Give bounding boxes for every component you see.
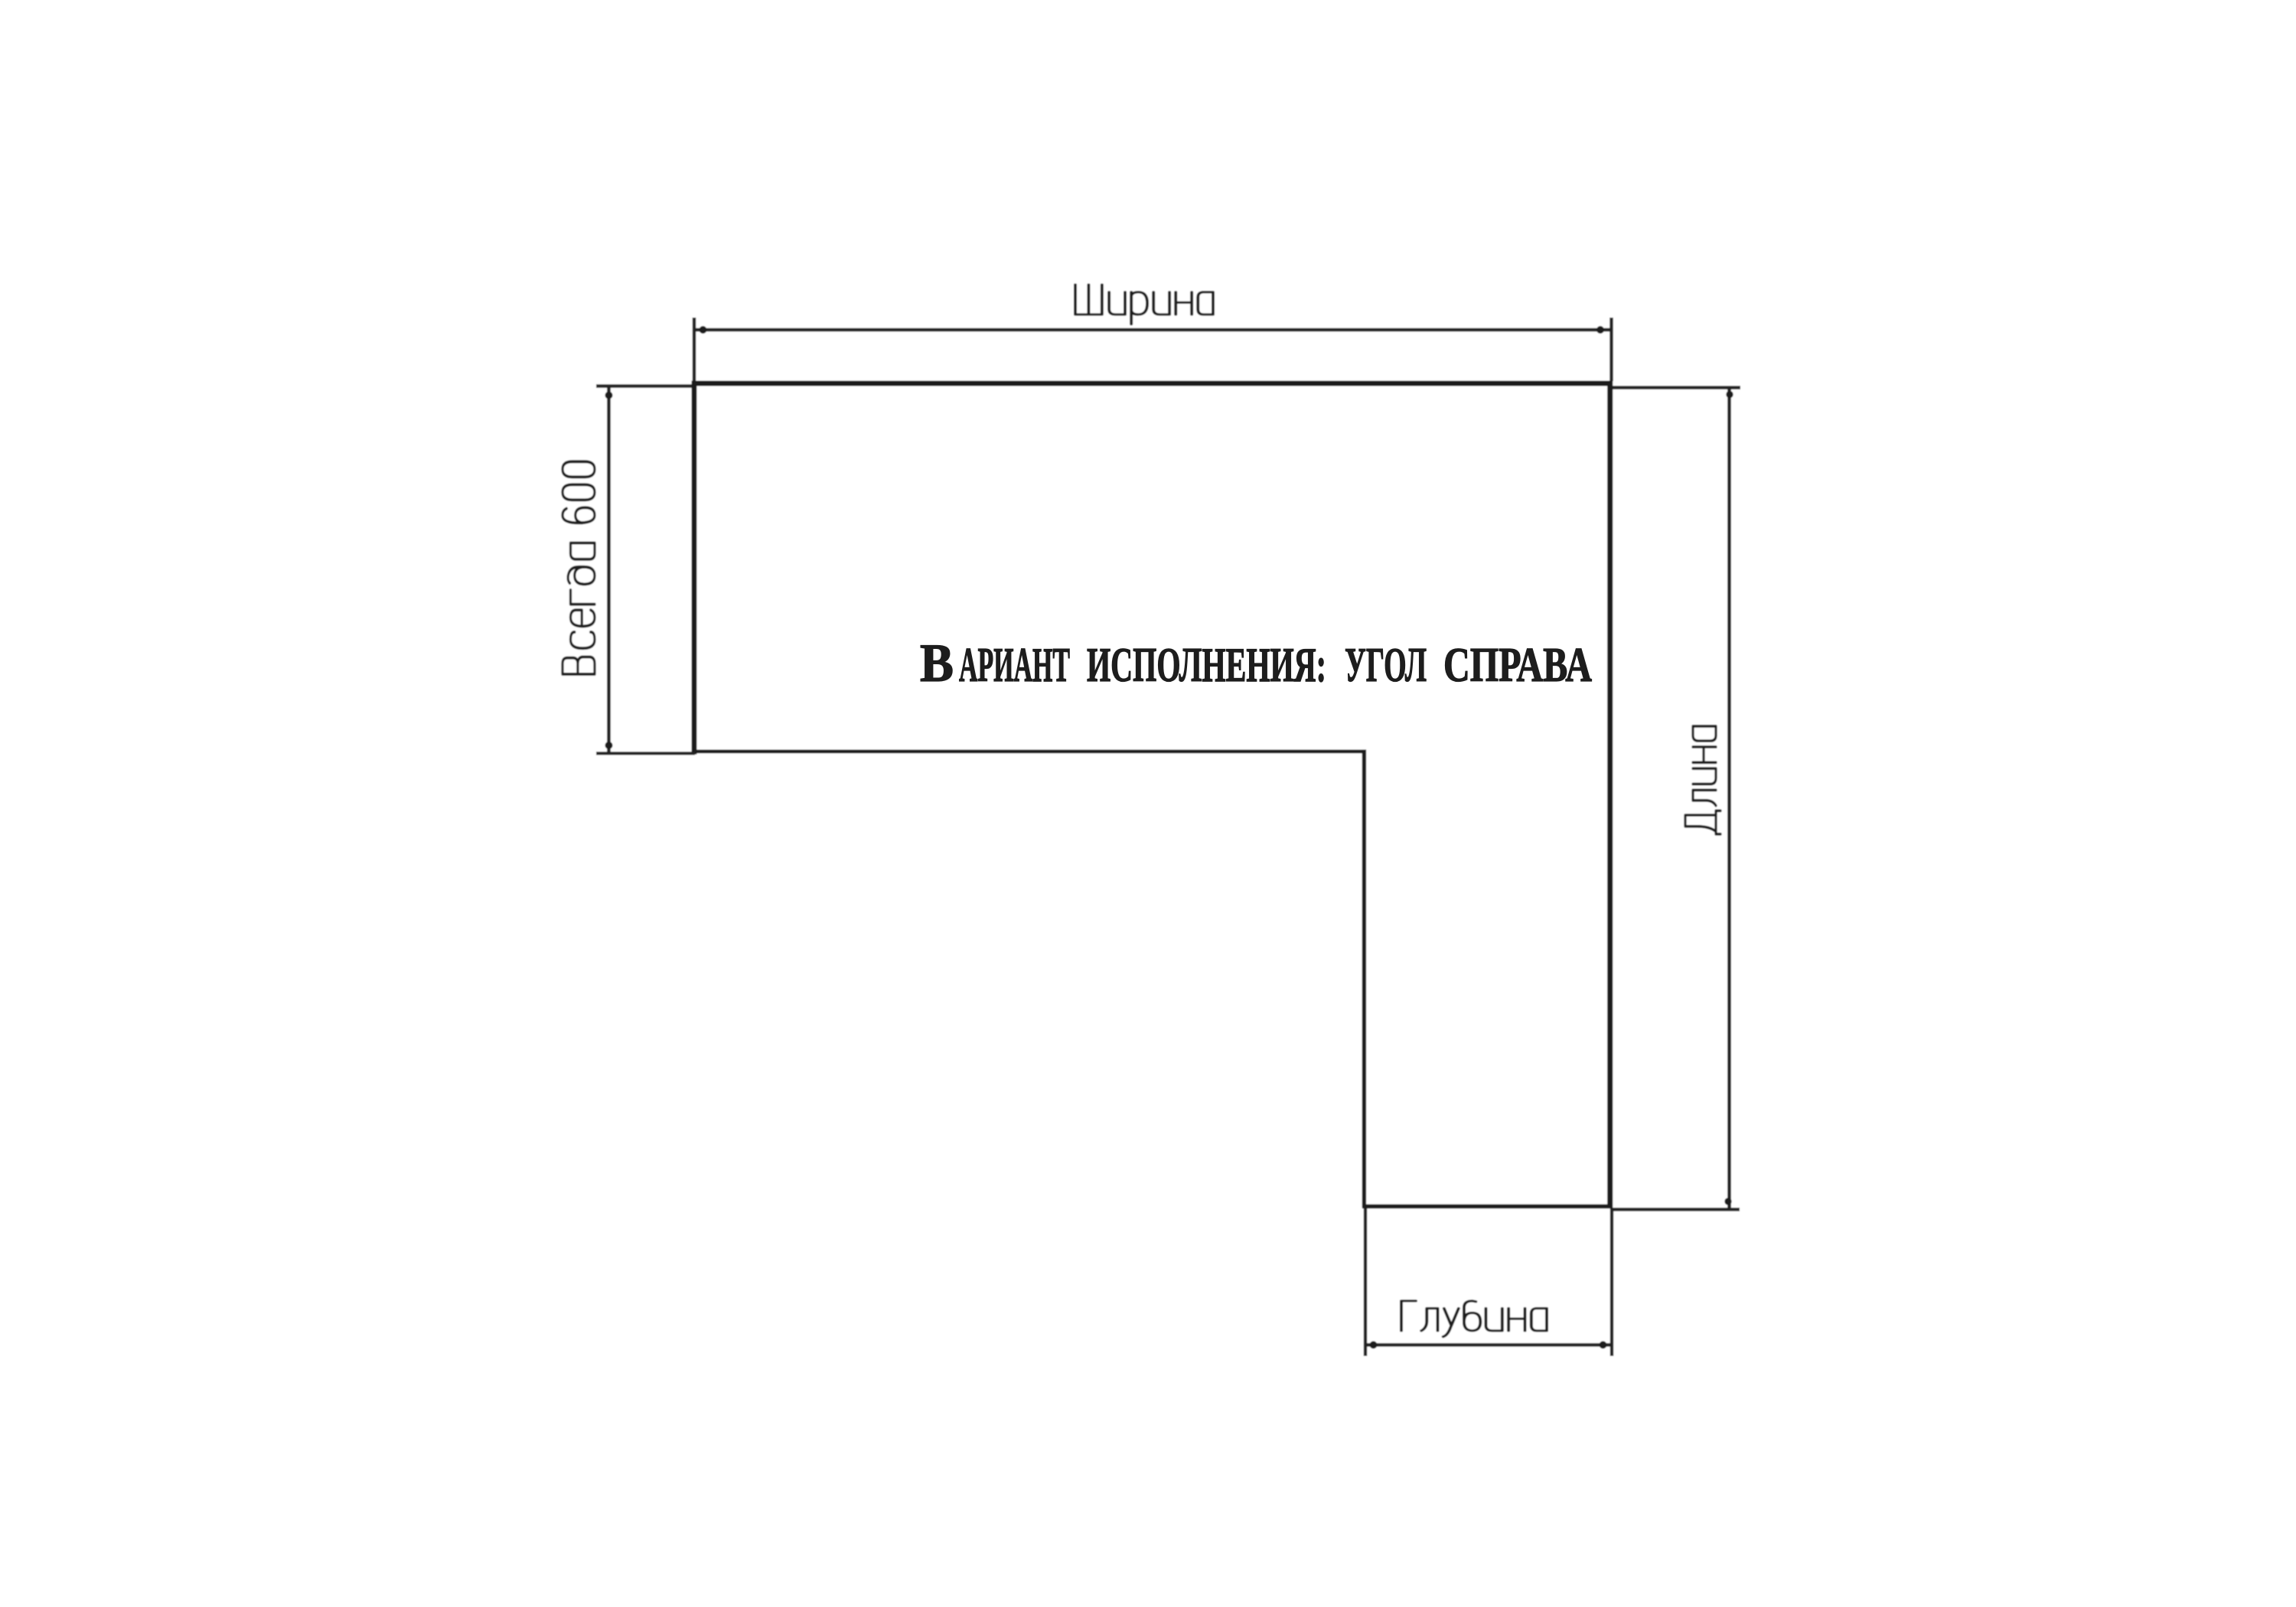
svg-text:СПРАВА: СПРАВА [1443,637,1592,692]
svg-text:АРИАНТ: АРИАНТ [959,637,1070,692]
svg-text:ИСПОЛНЕНИЯ:: ИСПОЛНЕНИЯ: [1087,637,1326,692]
svg-text:УГОЛ: УГОЛ [1345,637,1427,692]
svg-text:В: В [920,634,954,693]
